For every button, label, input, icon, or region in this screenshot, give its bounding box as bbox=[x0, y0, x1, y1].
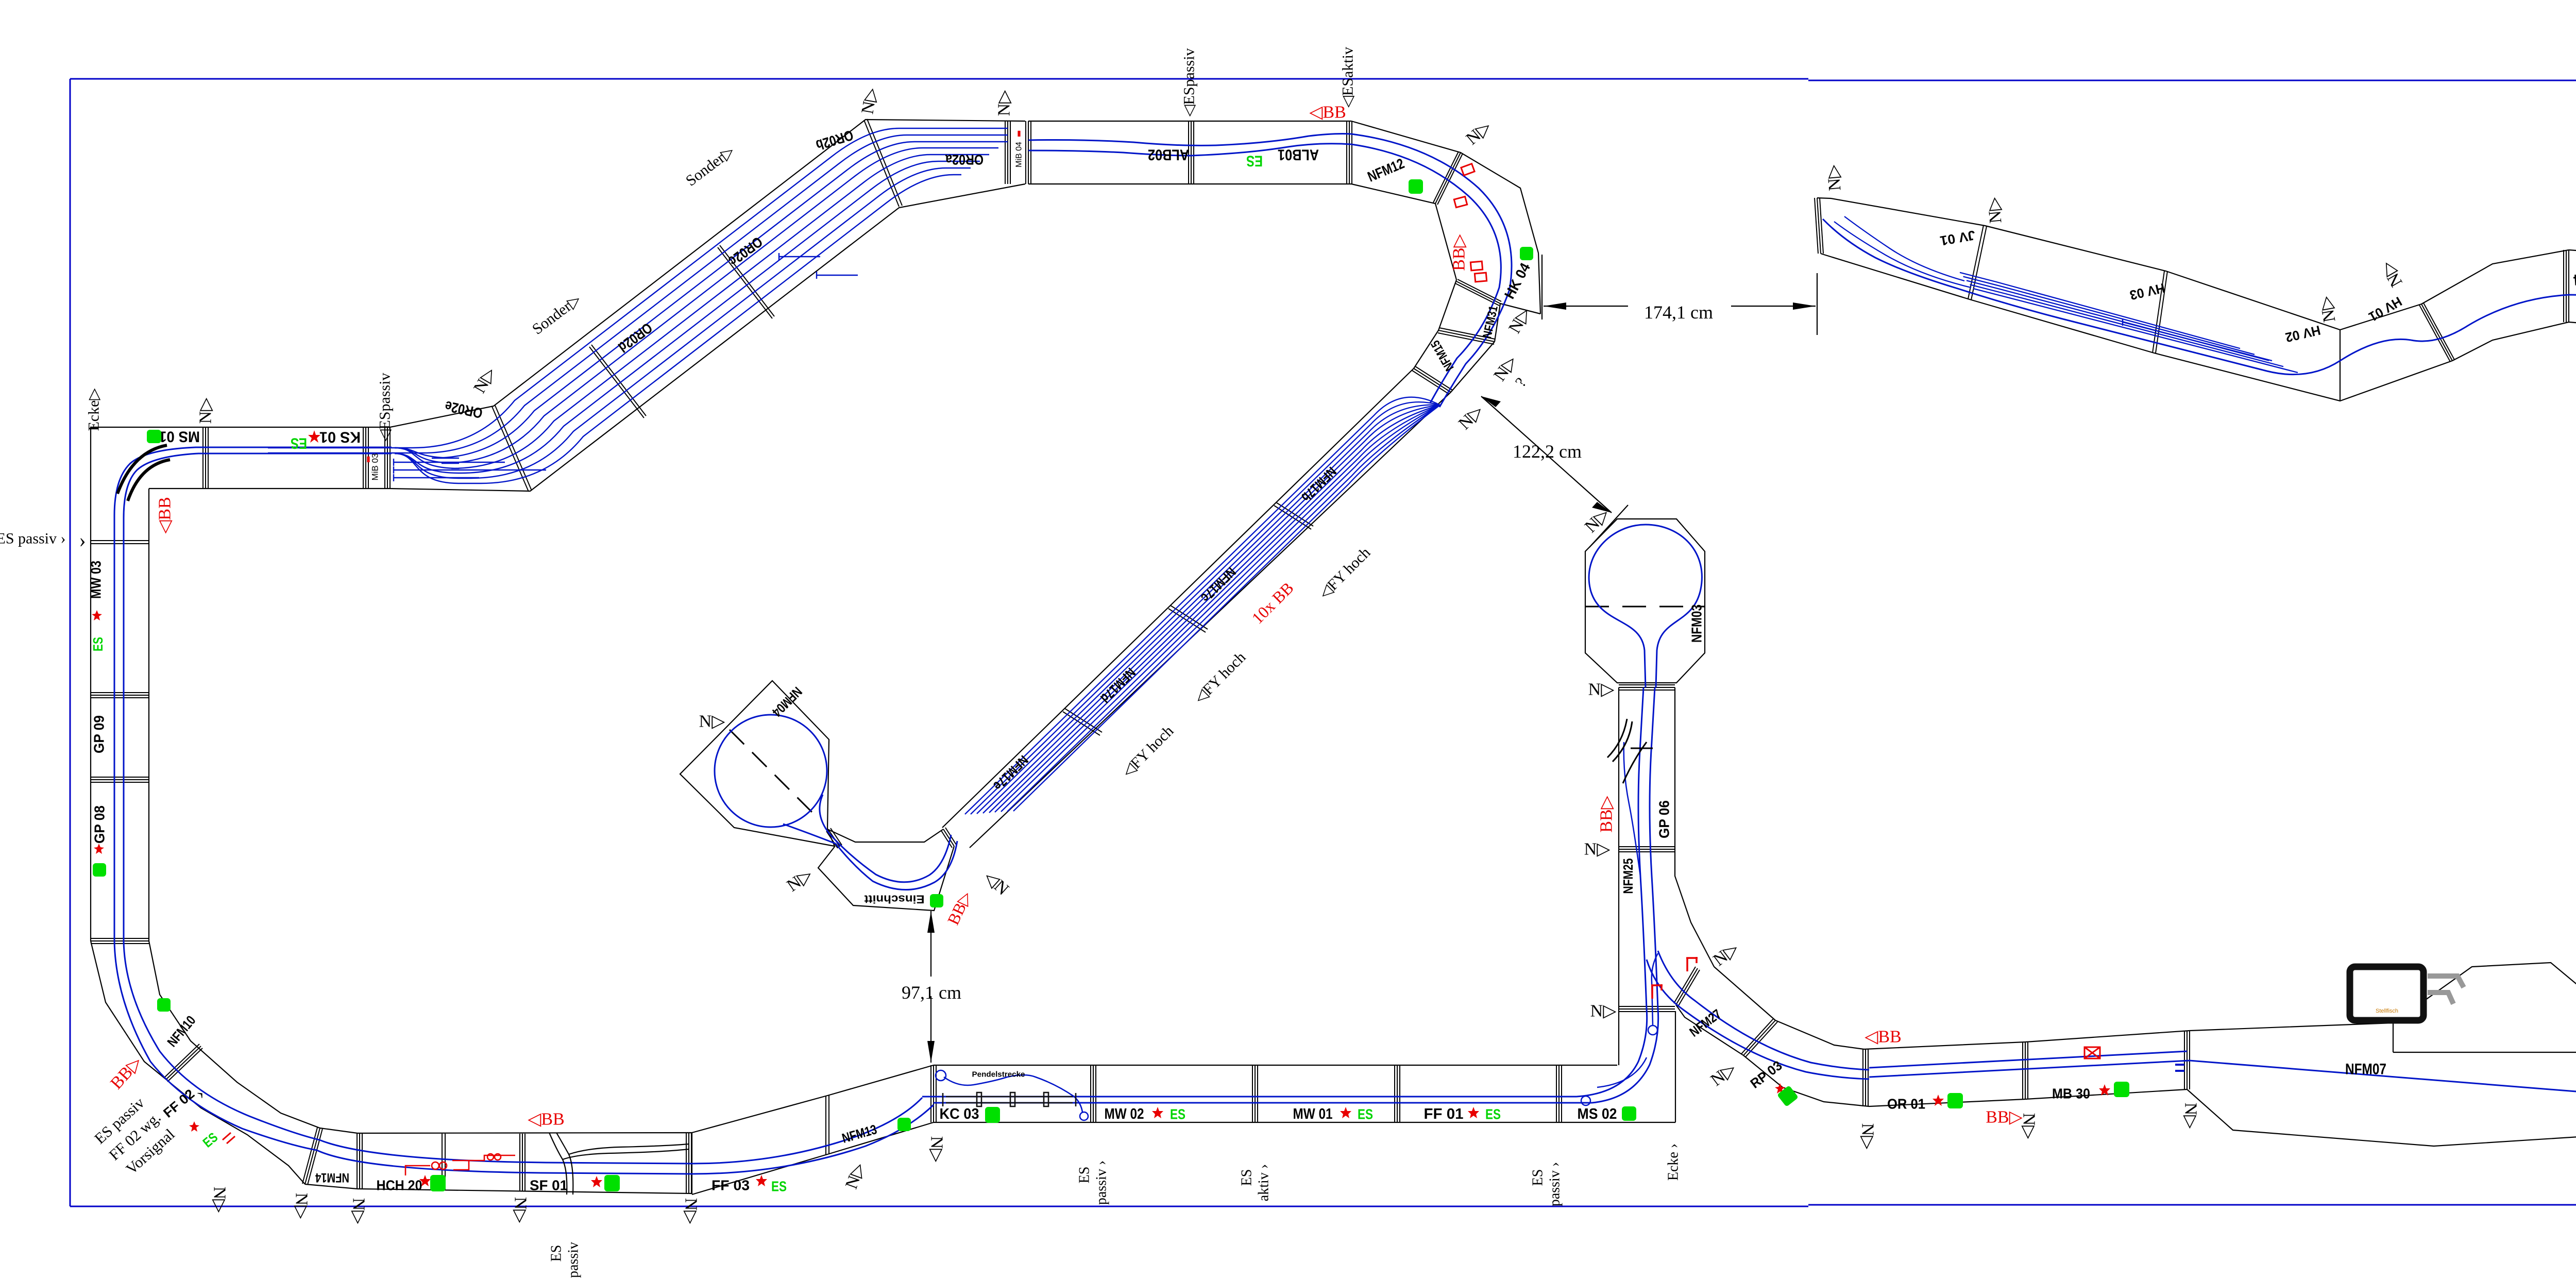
svg-text:ES: ES bbox=[1170, 1106, 1185, 1122]
svg-text:GP 09: GP 09 bbox=[91, 715, 107, 753]
svg-text:MiB 04: MiB 04 bbox=[1015, 142, 1024, 167]
svg-text:N▷: N▷ bbox=[1588, 680, 1615, 699]
svg-text:NFM14: NFM14 bbox=[315, 1170, 349, 1185]
svg-text:◁BB: ◁BB bbox=[1309, 103, 1346, 122]
svg-text:ES passiv ›: ES passiv › bbox=[0, 530, 66, 547]
svg-text:◁ESpassiv: ◁ESpassiv bbox=[377, 373, 394, 441]
svg-text:ES: ES bbox=[1077, 1167, 1093, 1184]
svg-text:OR02a: OR02a bbox=[945, 152, 984, 168]
svg-text:ALB01: ALB01 bbox=[1278, 146, 1319, 163]
svg-text:FF 03: FF 03 bbox=[711, 1178, 750, 1193]
svg-text:N▷: N▷ bbox=[1584, 840, 1611, 859]
svg-text:BB▷: BB▷ bbox=[1450, 233, 1469, 271]
svg-text:N▷: N▷ bbox=[995, 90, 1014, 116]
svg-text:HCH 20: HCH 20 bbox=[377, 1178, 422, 1193]
svg-text:ES: ES bbox=[1246, 153, 1263, 170]
svg-text:Einschnitt: Einschnitt bbox=[864, 893, 925, 906]
svg-text:◁ESpassiv: ◁ESpassiv bbox=[1181, 48, 1198, 116]
svg-text:N▷: N▷ bbox=[196, 397, 215, 424]
svg-text:BB▷: BB▷ bbox=[1986, 1108, 2023, 1127]
svg-text:ES: ES bbox=[1358, 1106, 1373, 1122]
svg-text:GP 08: GP 08 bbox=[92, 805, 108, 844]
svg-text:MW 01: MW 01 bbox=[1293, 1106, 1333, 1122]
svg-text:GP 06: GP 06 bbox=[1656, 800, 1672, 838]
svg-text:◁BB: ◁BB bbox=[1865, 1028, 1902, 1047]
svg-text:MS 02: MS 02 bbox=[1578, 1106, 1617, 1122]
svg-text:OR 01: OR 01 bbox=[1887, 1096, 1925, 1112]
svg-text:ES: ES bbox=[90, 637, 106, 651]
svg-text:NFM03: NFM03 bbox=[1689, 604, 1705, 643]
svg-text:passiv ›: passiv › bbox=[1547, 1162, 1563, 1206]
svg-text:KS 01: KS 01 bbox=[319, 429, 361, 446]
svg-text:N▷: N▷ bbox=[699, 712, 726, 731]
svg-text:ES: ES bbox=[1530, 1169, 1546, 1186]
svg-text:N▷: N▷ bbox=[210, 1187, 229, 1214]
svg-text:Pendelstrecke: Pendelstrecke bbox=[972, 1070, 1025, 1079]
svg-text:174,1 cm: 174,1 cm bbox=[1644, 302, 1713, 323]
svg-text:N▷: N▷ bbox=[1858, 1123, 1877, 1150]
svg-text:N▷: N▷ bbox=[682, 1198, 701, 1225]
svg-text:NFM07: NFM07 bbox=[2345, 1061, 2386, 1078]
svg-text:N▷: N▷ bbox=[349, 1198, 368, 1225]
svg-text:MiB 03: MiB 03 bbox=[370, 453, 380, 481]
svg-text:MB 30: MB 30 bbox=[2052, 1086, 2090, 1102]
svg-text:N▷: N▷ bbox=[927, 1136, 946, 1163]
svg-text:passiv: passiv bbox=[566, 1242, 582, 1278]
svg-text:N▷: N▷ bbox=[292, 1193, 311, 1220]
svg-text:◁BB: ◁BB bbox=[156, 497, 175, 534]
svg-text:N▷: N▷ bbox=[1823, 163, 1844, 192]
svg-text:Stellfisch: Stellfisch bbox=[2376, 1008, 2398, 1014]
svg-text:▮: ▮ bbox=[1018, 129, 1021, 137]
svg-text:MS 01: MS 01 bbox=[159, 428, 200, 445]
svg-text:ES: ES bbox=[771, 1179, 787, 1195]
svg-text:ALB02: ALB02 bbox=[1148, 146, 1189, 163]
svg-text:97,1 cm: 97,1 cm bbox=[902, 982, 961, 1003]
svg-text:passiv ›: passiv › bbox=[1094, 1161, 1110, 1205]
svg-text:◁BB: ◁BB bbox=[528, 1110, 565, 1129]
svg-text:MW 02: MW 02 bbox=[1105, 1106, 1144, 1122]
svg-text:MW 03: MW 03 bbox=[88, 561, 104, 599]
svg-text:ES: ES bbox=[291, 435, 307, 452]
svg-text:N▷: N▷ bbox=[1590, 1002, 1617, 1021]
svg-text:N▷: N▷ bbox=[1984, 196, 2005, 224]
svg-text:FF 01: FF 01 bbox=[1424, 1106, 1464, 1122]
svg-text:N▷: N▷ bbox=[511, 1197, 530, 1224]
svg-text:Ecke▷: Ecke▷ bbox=[86, 388, 103, 431]
svg-text:ES: ES bbox=[1485, 1106, 1501, 1122]
svg-text:BB▷: BB▷ bbox=[1597, 795, 1616, 832]
svg-text:122,2 cm: 122,2 cm bbox=[1513, 441, 1582, 462]
svg-text:N▷: N▷ bbox=[2181, 1103, 2200, 1130]
svg-text:ES: ES bbox=[1239, 1169, 1255, 1186]
svg-text:SF 01: SF 01 bbox=[530, 1178, 568, 1193]
svg-text:KC 03: KC 03 bbox=[940, 1106, 979, 1122]
svg-text:Ecke ›: Ecke › bbox=[1666, 1144, 1682, 1181]
svg-text:◁ESaktiv: ◁ESaktiv bbox=[1340, 47, 1357, 108]
svg-text:›: › bbox=[79, 529, 86, 552]
svg-text:aktiv ›: aktiv › bbox=[1256, 1164, 1272, 1201]
svg-text:NFM25: NFM25 bbox=[1620, 859, 1636, 894]
svg-text:ES: ES bbox=[549, 1245, 565, 1262]
svg-text:▮: ▮ bbox=[367, 455, 370, 463]
